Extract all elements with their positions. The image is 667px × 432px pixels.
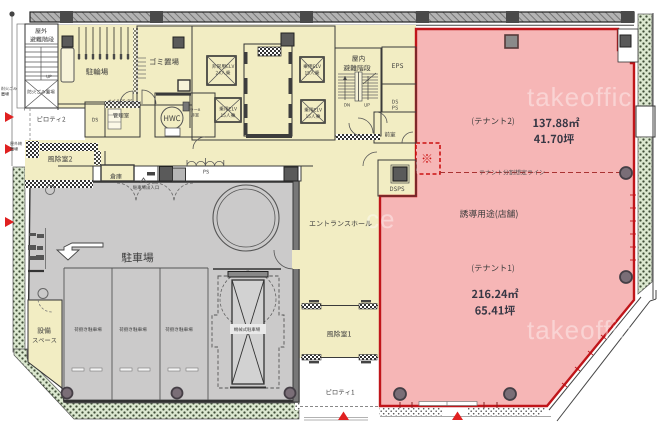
svg-text:takeoffic: takeoffic	[527, 315, 632, 345]
svg-text:takeoffic: takeoffic	[527, 82, 632, 112]
svg-text:ce: ce	[366, 204, 395, 234]
